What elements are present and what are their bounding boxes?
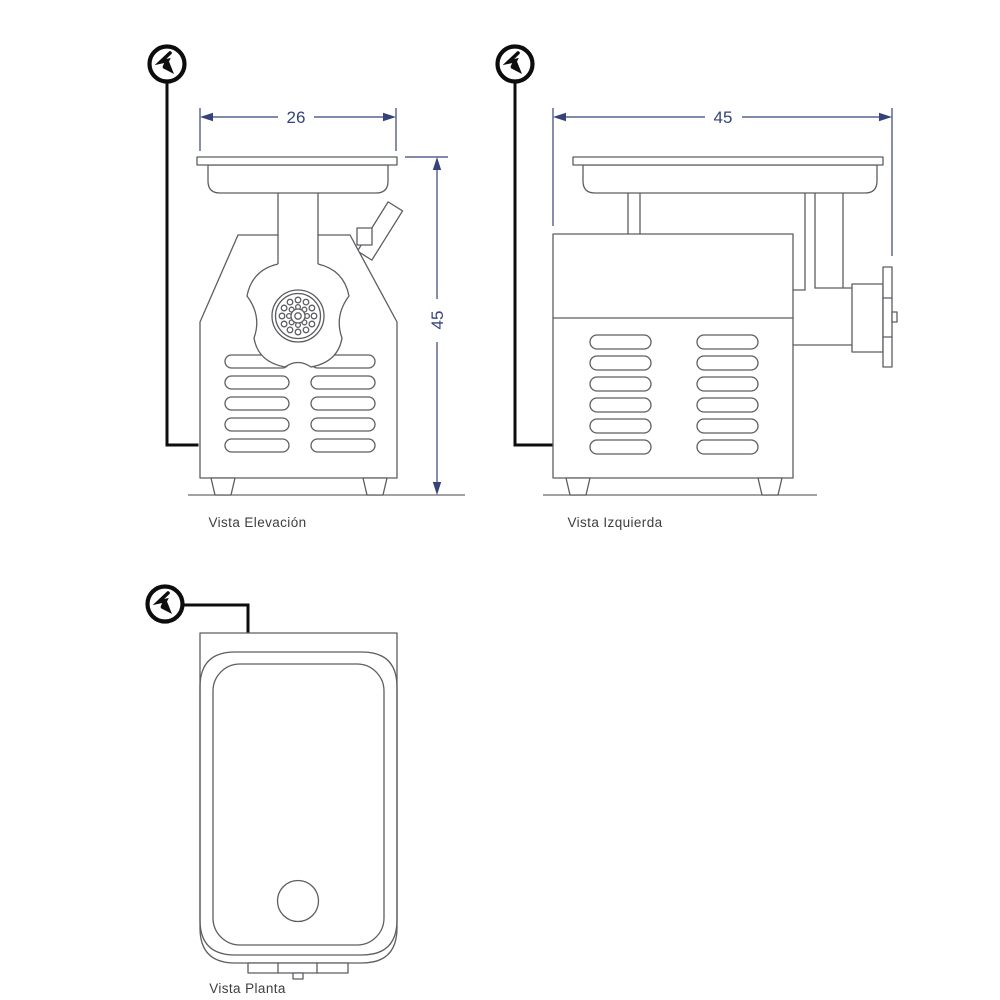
plan-view-label: Vista Planta — [175, 981, 320, 996]
grinder-side-outline — [553, 157, 897, 495]
left-side-view: 45 — [498, 47, 898, 496]
head-protrusion — [248, 963, 348, 979]
dimension-height-45: 45 — [405, 157, 448, 495]
foot-left — [566, 478, 590, 495]
elevation-view: 26 45 — [150, 47, 466, 496]
plan-view — [148, 587, 398, 980]
left-view-label: Vista Izquierda — [540, 515, 690, 530]
foot-left — [211, 478, 235, 495]
power-supply-line — [184, 605, 248, 632]
foot-right — [758, 478, 782, 495]
drawing-sheet: 26 45 — [0, 0, 1000, 1000]
power-supply-line — [167, 84, 197, 445]
feed-tray — [197, 157, 397, 193]
grinding-plate — [272, 290, 324, 342]
elevation-view-label: Vista Elevación — [185, 515, 330, 530]
power-icon — [150, 47, 185, 82]
dimension-value: 26 — [287, 108, 306, 127]
machine-body-top — [200, 633, 397, 963]
power-icon — [148, 587, 183, 622]
dimension-value: 45 — [714, 108, 733, 127]
dimension-value: 45 — [428, 311, 447, 330]
grinder-top-outline — [200, 633, 397, 979]
front-flange — [883, 267, 892, 367]
orthographic-views-canvas: 26 45 — [0, 0, 1000, 1000]
grinder-front-outline — [197, 157, 403, 495]
grinder-barrel — [852, 284, 883, 352]
feed-tray — [573, 157, 883, 193]
auger-stub — [892, 312, 897, 322]
power-icon — [498, 47, 533, 82]
foot-right — [363, 478, 387, 495]
feed-neck — [278, 193, 318, 266]
locking-handle — [357, 202, 403, 260]
machine-body — [553, 234, 793, 478]
dimension-width-26: 26 — [200, 108, 396, 151]
grinder-head-side — [852, 267, 897, 367]
power-supply-line — [515, 84, 552, 445]
